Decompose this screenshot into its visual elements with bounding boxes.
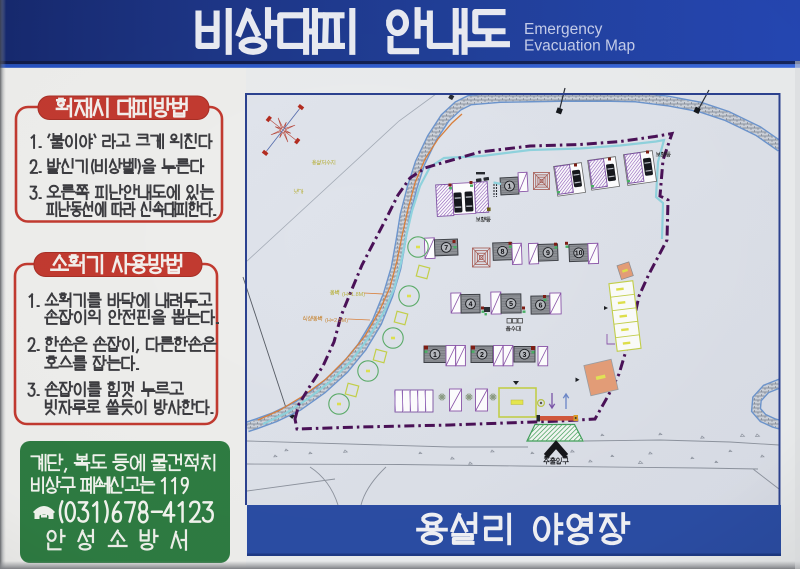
svg-text:2: 2: [480, 352, 484, 359]
svg-text:1: 1: [507, 183, 511, 190]
svg-text:6: 6: [539, 302, 543, 309]
svg-text:9: 9: [546, 250, 550, 257]
svg-text:Emergency: Emergency: [524, 21, 603, 38]
svg-text:(H=2.5M): (H=2.5M): [325, 318, 348, 324]
svg-text:3: 3: [523, 352, 527, 359]
svg-text:10: 10: [575, 250, 583, 257]
svg-text:1: 1: [433, 352, 437, 359]
svg-text:8: 8: [500, 249, 504, 256]
svg-text:(H=1.8M): (H=1.8M): [342, 292, 365, 298]
svg-text:7: 7: [444, 245, 448, 252]
svg-text:5: 5: [509, 301, 513, 308]
svg-text:Evacuation Map: Evacuation Map: [524, 38, 635, 55]
svg-text:4: 4: [469, 301, 473, 308]
